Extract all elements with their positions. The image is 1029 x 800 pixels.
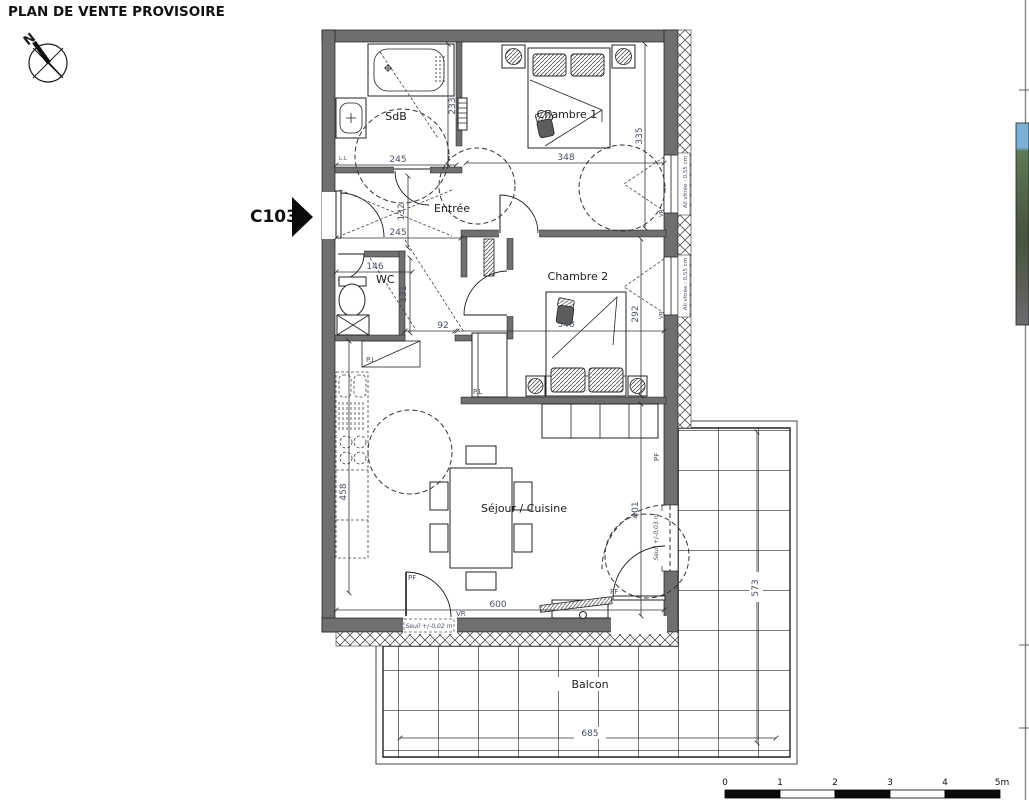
bottom-seuil-label: Seuil +/-0,02 m	[406, 623, 453, 630]
chambre2-furniture: P.L Chambre 2	[472, 270, 658, 438]
insulation-hatch-right	[678, 30, 691, 428]
sejour-radiator-icon	[540, 597, 612, 619]
dim-kitchen-depth: 458	[339, 483, 349, 500]
entry-arrow-icon	[292, 197, 313, 237]
dim-sdb-width: 245	[389, 155, 406, 165]
cooktop-icon	[340, 436, 366, 464]
vr-left-label: VR	[456, 610, 466, 618]
scale-tick-2: 2	[832, 778, 838, 788]
wc-label: WC	[376, 273, 395, 286]
dining-table-icon	[450, 468, 512, 568]
chambre1-door-swing	[500, 195, 538, 233]
dish-drainer-icon	[339, 402, 363, 430]
scale-tick-4: 4	[942, 778, 948, 788]
adjacent-photo-sliver	[1016, 123, 1029, 325]
pillow-icon	[589, 368, 623, 392]
dining-set	[430, 446, 532, 590]
dim-chambre2-depth: 292	[631, 305, 641, 322]
dim-sejour-depth: 401	[631, 501, 641, 518]
chair-icon	[466, 446, 496, 464]
chambre1-label: Chambre 1	[537, 108, 598, 121]
sejour-label: Séjour / Cuisine	[481, 502, 567, 515]
chambre1-vr-label: VR	[659, 209, 665, 217]
pf-left-label: PF	[408, 574, 416, 582]
chambre2-label: Chambre 2	[548, 270, 609, 283]
chambre2-pl-label: P.L	[473, 388, 482, 396]
entry-door-swing	[341, 193, 384, 237]
chair-icon	[466, 572, 496, 590]
dim-sdb-depth: 233	[448, 97, 458, 114]
balcony-label: Balcon	[571, 678, 608, 691]
washer-ll-label: L.L	[339, 156, 348, 162]
duct-hatch	[484, 239, 494, 276]
dim-entree-width: 245	[389, 228, 406, 238]
scale-bar: 0 1 2 3 4 5m	[722, 778, 1009, 798]
chambre1-sill-label: All vitrée : 0,55 cm	[682, 156, 689, 208]
unit-label: C103	[250, 197, 313, 237]
insulation-hatch-bottom	[336, 632, 678, 646]
entree-label: Entrée	[434, 202, 470, 215]
dim-chambre1-width: 348	[557, 153, 574, 163]
toilet-icon	[339, 284, 365, 316]
kitchen-sink-icon	[339, 375, 366, 397]
floorplan-page: PLAN DE VENTE PROVISOIRE N C103 Balcon 6…	[0, 0, 1029, 800]
chair-icon	[430, 482, 448, 510]
pf-right-leaf	[613, 596, 665, 600]
entry-opening	[322, 192, 336, 239]
dim-chambre1-depth: 335	[635, 127, 645, 144]
right-pf-label: PF	[653, 453, 661, 461]
chambre2-door-swing	[464, 271, 507, 315]
dim-hall-passage: 92	[437, 321, 448, 331]
dim-entree-depth: 132	[397, 203, 407, 220]
floorplan-canvas: PLAN DE VENTE PROVISOIRE N C103 Balcon 6…	[0, 0, 1029, 800]
scale-tick-0: 0	[722, 778, 728, 788]
hall-pl-label: P.L	[366, 356, 375, 364]
dim-chambre2-width: 348	[557, 320, 574, 330]
scale-tick-3: 3	[887, 778, 893, 788]
bathtub-icon	[368, 44, 454, 138]
bathroom-furniture: L.L SdB	[336, 44, 454, 162]
unit-code: C103	[250, 207, 298, 227]
hall-closet-pl: P.L	[362, 341, 420, 367]
scale-tick-5m: 5m	[995, 778, 1010, 788]
dim-sejour-width: 600	[489, 600, 506, 610]
page-title: PLAN DE VENTE PROVISOIRE	[8, 4, 225, 20]
pillow-icon	[533, 54, 566, 76]
dim-wc-width: 146	[366, 262, 383, 272]
balcony-width-dim: 685	[581, 729, 598, 739]
sdb-label: SdB	[385, 110, 407, 123]
right-seuil-label: Seuil +/-0,03 m	[653, 513, 660, 560]
pf-right-label: PF	[610, 588, 618, 596]
balcony: Balcon 685 573	[376, 421, 797, 764]
scale-tick-1: 1	[777, 778, 783, 788]
entry-door-leaf	[336, 191, 341, 238]
chair-icon	[430, 524, 448, 552]
radiator-icon	[458, 98, 467, 130]
page-edge	[1016, 0, 1029, 800]
chambre1-furniture: Chambre 1	[502, 45, 635, 148]
pillow-icon	[551, 368, 585, 392]
chair-icon	[514, 524, 532, 552]
chambre2-sill-label: All vitrée : 0,55 cm	[682, 258, 689, 310]
sdb-door-swing	[395, 171, 429, 205]
balcony-depth-dim: 573	[751, 579, 761, 596]
compass-rose: N	[21, 30, 67, 82]
chambre2-vr-label: VR	[659, 311, 665, 319]
water-heater-icon	[337, 315, 369, 335]
pillow-icon	[571, 54, 604, 76]
dim-wc-depth: 131	[399, 285, 409, 302]
